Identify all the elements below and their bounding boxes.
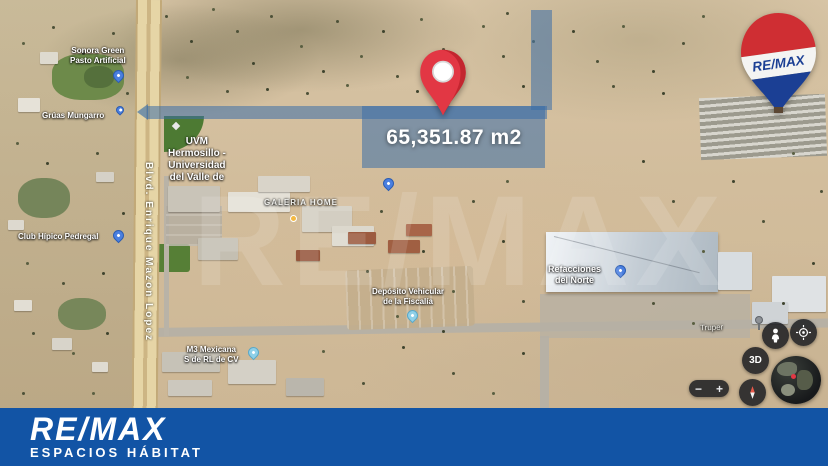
pegman-icon [769, 328, 782, 343]
parcel-north-strip [531, 10, 552, 110]
zoom-control[interactable]: − + [689, 380, 729, 397]
zoom-out-button[interactable]: − [695, 382, 702, 396]
poi-label-line: S de RL de CV [184, 355, 239, 365]
poi-label-deposito[interactable]: Depósito Vehicular de la Fiscalía [372, 287, 444, 306]
poi-label-line: Universidad [168, 160, 226, 172]
3d-toggle-label: 3D [749, 355, 762, 366]
listing-image: Blvd. Enrique Mazon Lopez RE/MAX 65,351.… [0, 0, 828, 466]
compass-button[interactable] [739, 379, 766, 406]
road-name-label[interactable]: Blvd. Enrique Mazon Lopez [143, 162, 154, 342]
baseball-diamond [172, 122, 180, 130]
poi-label-line: Refacciones [548, 264, 601, 275]
globe-overview-button[interactable] [771, 356, 821, 404]
compass-icon [745, 385, 760, 400]
poi-label-del-norte[interactable]: Refacciones del Norte [548, 264, 601, 286]
3d-toggle-button[interactable]: 3D [742, 347, 769, 374]
building-red-roof [348, 232, 376, 244]
poi-pin-saved[interactable] [246, 345, 262, 361]
building-sign-galeria[interactable]: GALERIA HOME [264, 198, 338, 208]
remax-balloon-logo: RE/MAX [736, 12, 821, 114]
lawn [58, 298, 106, 330]
poi-label-club-hipico[interactable]: Club Hípico Pedregal [18, 232, 98, 242]
house [14, 300, 32, 311]
parcel-access-arrow [137, 104, 148, 120]
globe-continent [781, 384, 795, 396]
poi-label-line: UVM [168, 136, 226, 148]
building-red-roof [388, 240, 420, 253]
agency-logo: RE/MAX ESPACIOS HÁBITAT [30, 414, 203, 460]
parcel-area-label: 65,351.87 m2 [358, 126, 550, 150]
poi-label-sonora-green[interactable]: Sonora Green Pasto Artificial [70, 46, 126, 65]
poi-label-line: Pasto Artificial [70, 56, 126, 66]
poi-pin[interactable] [381, 176, 397, 192]
poi-dot-pin[interactable] [290, 215, 297, 222]
agency-name: RE/MAX [30, 414, 203, 444]
my-location-icon [796, 325, 811, 340]
house [96, 172, 114, 182]
poi-label-line: del Norte [548, 275, 601, 286]
poi-label-line: Sonora Green [70, 46, 126, 56]
house [40, 52, 58, 64]
poi-label-gruas-mungarro[interactable]: Grúas Mungarro [42, 111, 104, 121]
poi-label-line: Hermosillo - [168, 148, 226, 160]
house [18, 98, 40, 112]
building [198, 238, 238, 260]
vegetation-dots [0, 0, 3, 3]
lawn [84, 66, 114, 88]
building [286, 378, 324, 396]
poi-label-line: M3 Mexicana [184, 345, 239, 355]
poi-label-line: de la Fiscalía [372, 297, 444, 307]
poi-label-line: del Valle de [168, 172, 226, 184]
house [52, 338, 72, 350]
poi-label-m3-mexicana[interactable]: M3 Mexicana S de RL de CV [184, 345, 239, 364]
poi-label-uvm[interactable]: UVM Hermosillo - Universidad del Valle d… [168, 136, 226, 184]
globe-location-dot [791, 374, 796, 379]
lawn [18, 178, 70, 218]
building [168, 380, 212, 396]
street [540, 336, 549, 408]
street-label-truper[interactable]: Truper [700, 323, 724, 333]
building [168, 186, 220, 212]
building-red-roof [406, 224, 432, 236]
satellite-map[interactable]: Blvd. Enrique Mazon Lopez RE/MAX 65,351.… [0, 0, 828, 408]
pegman-button[interactable] [762, 322, 789, 349]
building-red-roof [296, 250, 320, 261]
house [92, 362, 108, 372]
warehouse-annex [718, 252, 752, 290]
globe-continent [797, 370, 813, 390]
house [8, 220, 24, 230]
my-location-button[interactable] [790, 319, 817, 346]
building [258, 176, 310, 192]
zoom-in-button[interactable]: + [716, 382, 723, 396]
poi-label-line: Depósito Vehicular [372, 287, 444, 297]
property-marker-icon [416, 48, 470, 118]
poi-pin-grey[interactable] [755, 316, 763, 324]
agency-tagline: ESPACIOS HÁBITAT [30, 445, 203, 460]
footer-bar: RE/MAX ESPACIOS HÁBITAT [0, 408, 828, 466]
